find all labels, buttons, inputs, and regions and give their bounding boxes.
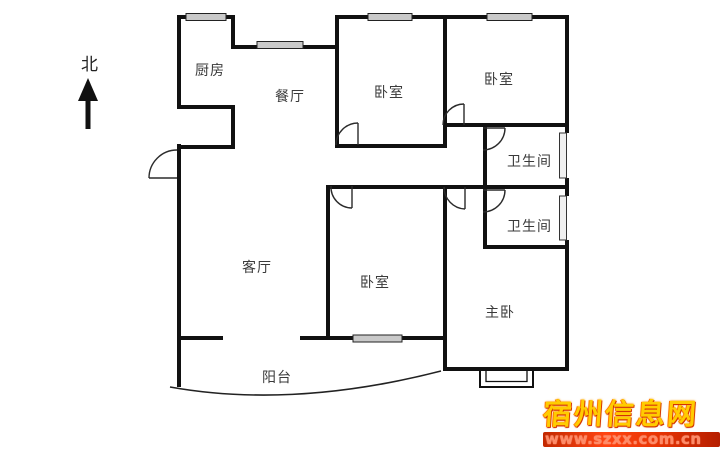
north-arrow-icon [78,78,98,129]
room-label-kitchen: 厨房 [195,64,225,79]
windows-group [186,14,567,343]
wall-entry-nook-bottom [177,145,235,149]
walls-group [177,15,569,387]
entry-door [149,150,177,178]
room-label-bedroom-top-right: 卧室 [484,73,514,88]
room-label-bedroom-bottom: 卧室 [360,276,390,291]
north-label: 北 [81,50,98,75]
wall-living-left [177,144,181,387]
watermark-site-url: www.szxx.com.cn [543,432,720,446]
wall-bedroom1-bottom [335,144,447,148]
wall-master-bottom [443,367,569,371]
bathroom2-window [560,196,567,240]
room-label-dining: 餐厅 [275,90,305,105]
wall-entry-nook-right [231,105,235,149]
bedroom1-door [336,123,358,145]
kitchen-window [186,14,226,21]
room-label-balcony: 阳台 [262,371,292,386]
wall-bedroom1-right [443,15,447,148]
watermark-url-bar: www.szxx.com.cn [543,432,720,447]
bedroom1-window [368,14,412,21]
wall-living-bottom-left [177,336,223,340]
floor-plan-drawing [0,0,720,459]
balcony-curve [170,371,441,395]
bathroom1-window [560,133,567,178]
wall-kitchen-left [177,15,181,109]
master-bay-window [480,371,533,387]
wall-right-lower [565,240,569,371]
wall-corridor-top [443,123,569,127]
wall-right-upper [565,15,569,133]
bedroom3-window [353,335,402,342]
wall-middle-horizontal [326,185,569,189]
bedroom3-door [331,186,352,208]
wall-bedroom1-left [335,15,339,148]
wall-bathroom2-bottom [483,245,569,249]
floor-plan: 北 厨房 餐厅 卧室 卧室 卫生间 卫生间 客厅 卧室 主卧 阳台 宿州信息网 … [0,0,720,459]
watermark: 宿州信息网 www.szxx.com.cn [543,399,720,447]
room-label-bathroom-upper: 卫生间 [507,155,552,170]
wall-living-bottom-mid [300,336,326,340]
wall-kitchen-bottom [177,105,235,109]
room-label-bedroom-top-left: 卧室 [374,86,404,101]
room-label-master: 主卧 [485,306,515,321]
watermark-site-name: 宿州信息网 [542,399,720,431]
wall-kitchen-right [231,15,235,49]
wall-bedroom3-left [326,185,330,340]
wall-master-left [443,185,447,371]
master-door [444,187,465,209]
room-label-bathroom-lower: 卫生间 [507,220,552,235]
room-label-living: 客厅 [242,261,272,276]
dining-window [257,42,303,49]
bedroom2-window [487,14,532,21]
